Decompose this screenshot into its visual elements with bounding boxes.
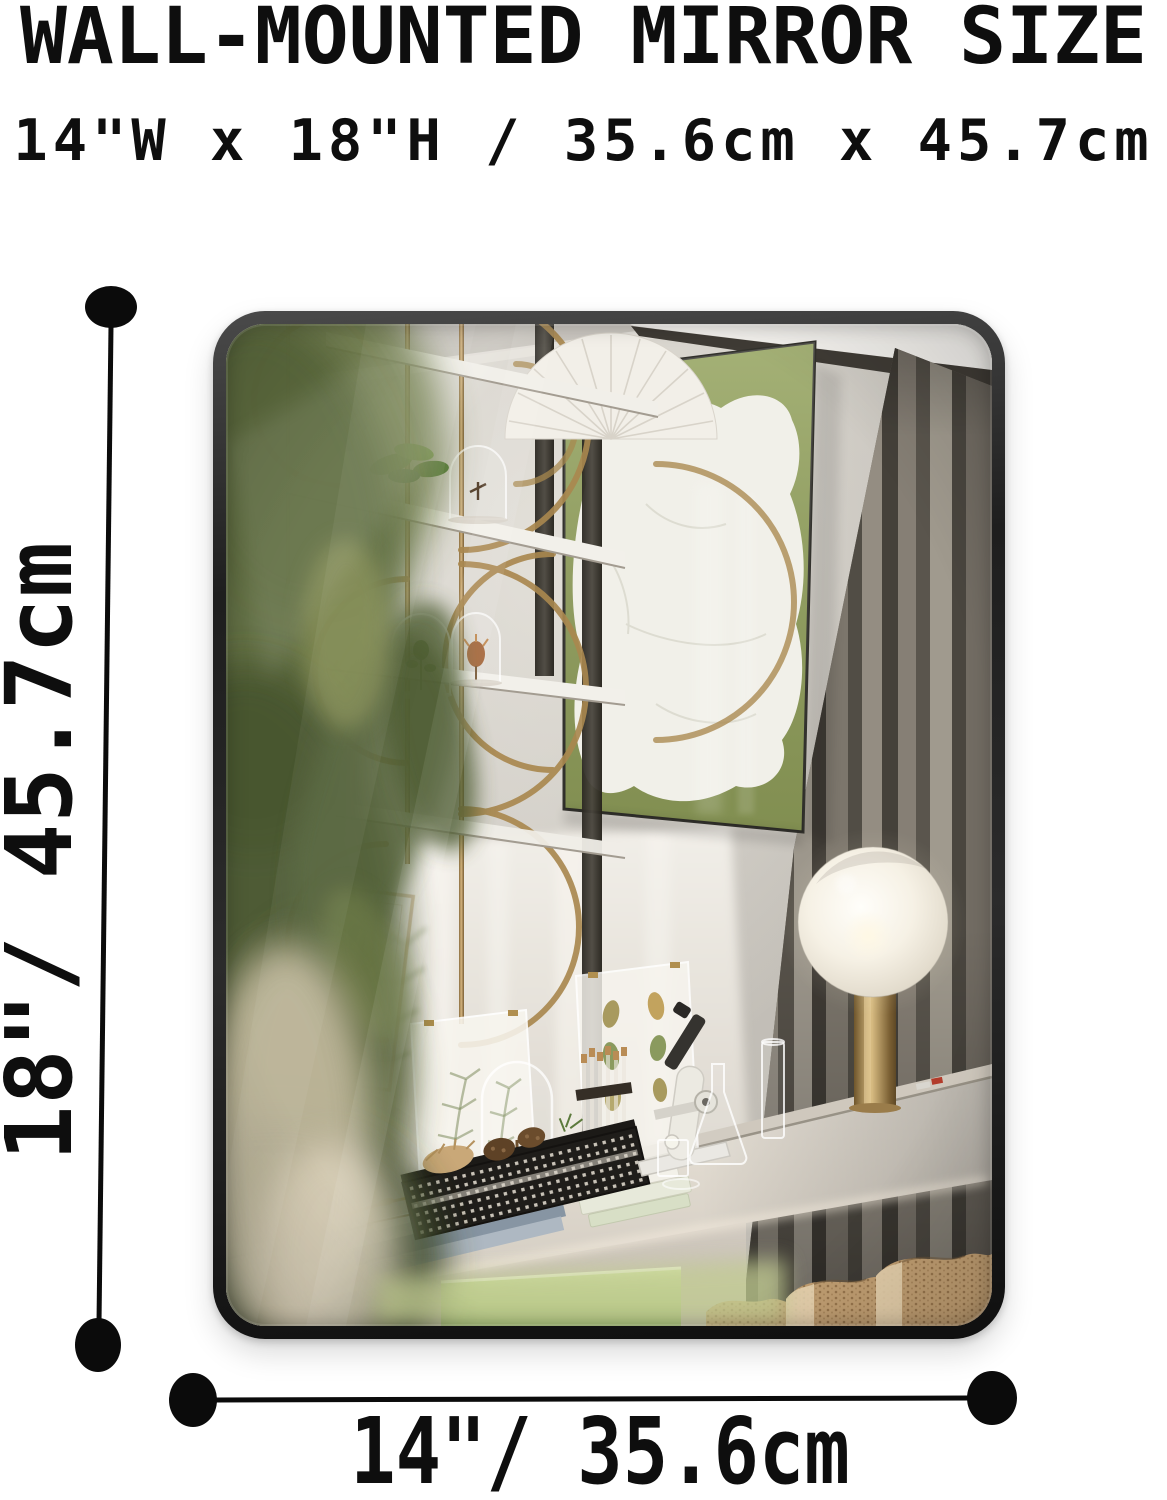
mirror-glass [226, 324, 992, 1326]
dimension-endpoint-dot [967, 1371, 1017, 1425]
mirror-frame [213, 311, 1005, 1339]
glass-sheen [226, 324, 992, 1326]
width-dimension-label: 14"/ 35.6cm [297, 1402, 904, 1500]
size-subtitle: 14"W x 18"H / 35.6cm x 45.7cm [0, 108, 1167, 174]
dimension-endpoint-dot [85, 286, 137, 328]
dimension-endpoint-dot [75, 1318, 121, 1372]
dimension-endpoint-dot [169, 1373, 217, 1427]
page-title: WALL-MOUNTED MIRROR SIZE [0, 0, 1167, 82]
height-dimension-label: 18"/ 45.7cm [0, 491, 92, 1211]
mirror-photo [226, 324, 992, 1326]
product-size-image: WALL-MOUNTED MIRROR SIZE 14"W x 18"H / 3… [0, 0, 1167, 1500]
